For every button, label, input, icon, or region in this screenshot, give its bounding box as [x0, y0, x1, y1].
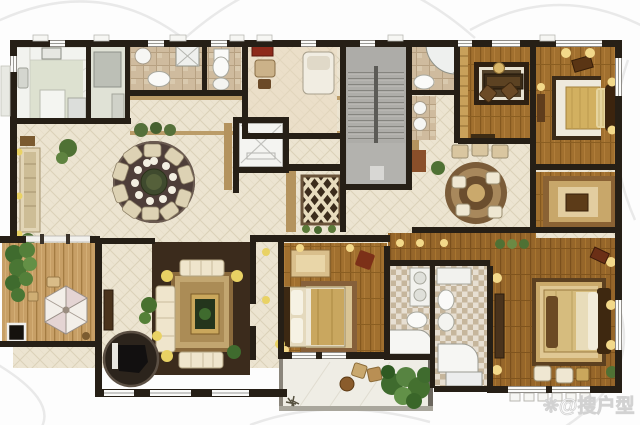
svg-text:❊@搜户型: ❊@搜户型 — [543, 394, 634, 417]
